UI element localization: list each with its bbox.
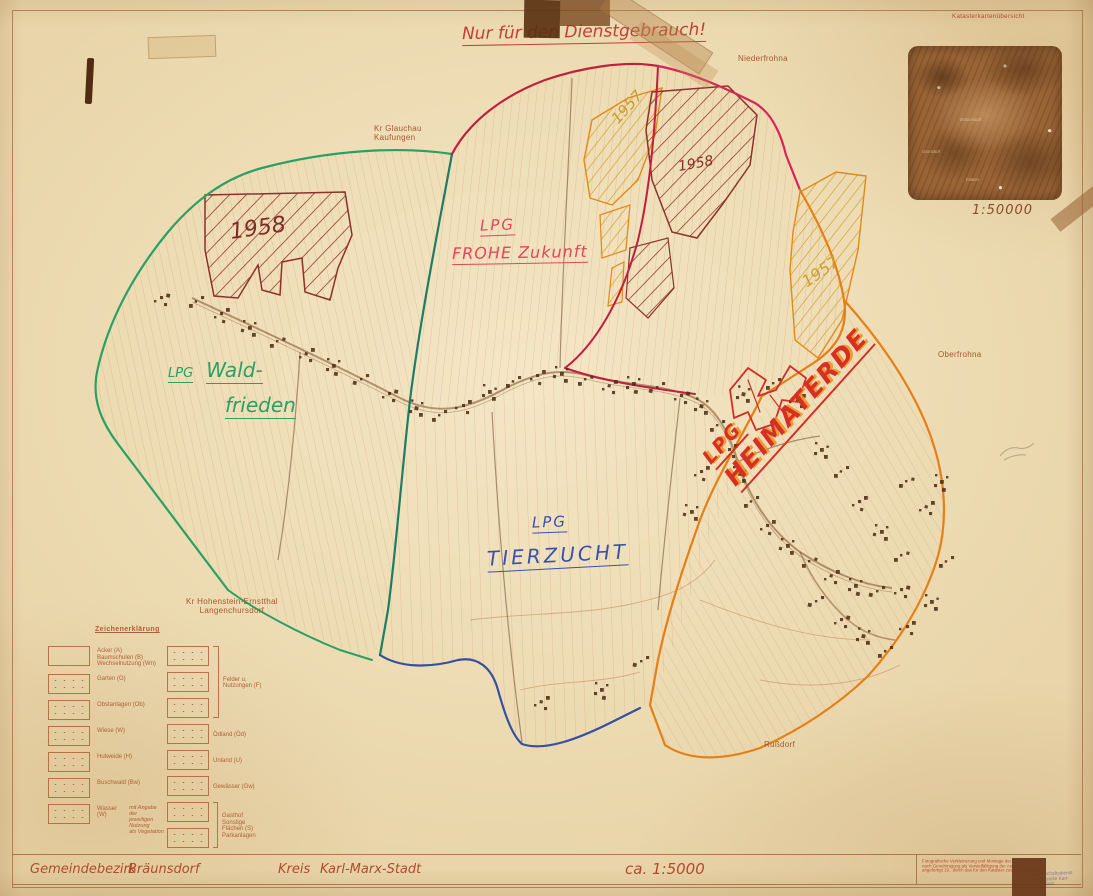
legend-right-column: Felder u. Nutzungen (F)Ödland (Öd)Unland… xyxy=(167,646,267,854)
legend-label: Gewässer (Gw) xyxy=(213,782,255,791)
label-lpg-frohe-zukunft-2: FROHE Zukunft xyxy=(452,242,588,265)
legend-symbol-box xyxy=(167,646,209,666)
legend-group: Gasthof Sonstige Flächen (S) Parkanlagen xyxy=(167,802,267,848)
legend-symbol-box xyxy=(167,724,209,744)
legend-row: Obstanlagen (Ob) xyxy=(48,700,166,720)
footer-district-label: Gemeindebezirk xyxy=(30,862,136,877)
waldfrieden-name2: frieden xyxy=(225,393,296,419)
legend-label: Wasser (W) xyxy=(97,804,122,819)
inset-label-bottom: Falken xyxy=(966,178,979,182)
place-russdorf: Rußdorf xyxy=(764,740,795,749)
legend-symbol-box xyxy=(48,726,90,746)
legend-symbol-box xyxy=(167,776,209,796)
legend-group: Ödland (Öd) xyxy=(167,724,267,744)
legend-label: Unland (U) xyxy=(213,756,242,765)
tape-residue-nw xyxy=(148,35,217,59)
stamp-dark-top xyxy=(524,0,561,38)
legend-row: Buschwald (Bw) xyxy=(48,778,166,798)
legend-symbol-box xyxy=(48,752,90,772)
legend-label: Gasthof Sonstige Flächen (S) Parkanlagen xyxy=(222,811,267,839)
inset-label-center: Bräunsdorf xyxy=(960,118,981,122)
waldfrieden-prefix: LPG xyxy=(168,366,193,383)
legend-symbol-box xyxy=(167,672,209,692)
stamp-bottom-right xyxy=(1012,858,1046,896)
place-oberfrohna: Oberfrohna xyxy=(938,350,981,359)
place-kr-glauchau: Kr Glauchau Kaufungen xyxy=(374,124,422,142)
legend-title: Zeichenerklärung xyxy=(95,626,160,633)
footer-top-rule xyxy=(12,854,1081,855)
legend-symbol-box xyxy=(48,646,90,666)
inset-map: Bräunsdorf chursdorf Falken xyxy=(908,46,1062,200)
legend-bracket xyxy=(213,646,219,718)
legend-group: Unland (U) xyxy=(167,750,267,770)
legend-left-column: Acker (A) Baumschulen (B) Wechselnutzung… xyxy=(48,646,166,841)
legend-group: Gewässer (Gw) xyxy=(167,776,267,796)
inset-title: Katasterkartenübersicht xyxy=(952,13,1025,20)
footer-kreis-label: Kreis xyxy=(278,862,310,877)
footer-bottom-rule xyxy=(12,884,1081,885)
footer-district-value: Bräunsdorf xyxy=(128,862,200,877)
legend-symbol-box xyxy=(48,778,90,798)
hatch-yellow-small-1 xyxy=(600,205,630,258)
label-lpg-waldfrieden: LPG Wald- xyxy=(168,358,263,384)
footer-kreis-value: Karl-Marx-Stadt xyxy=(320,862,421,877)
legend: Zeichenerklärung Acker (A) Baumschulen (… xyxy=(40,626,250,854)
inset-label-left: chursdorf xyxy=(922,150,940,154)
footer-divider xyxy=(916,854,917,884)
legend-label: Ödland (Öd) xyxy=(213,730,246,739)
legend-label: Garten (G) xyxy=(97,674,126,683)
label-lpg-frohe-zukunft-1: LPG xyxy=(480,214,516,236)
legend-note: mit Angabe der jeweiligen Nutzung als Ve… xyxy=(129,804,166,835)
legend-symbol-box xyxy=(48,804,90,824)
legend-symbol-box xyxy=(167,802,209,822)
label-lpg-tierzucht-1: LPG xyxy=(532,511,568,533)
legend-symbol-box xyxy=(167,828,209,848)
legend-row: Wiese (W) xyxy=(48,726,166,746)
legend-symbol-box xyxy=(48,700,90,720)
waldfrieden-name1: Wald- xyxy=(206,358,262,384)
legend-row: Hutweide (H) xyxy=(48,752,166,772)
legend-label: Acker (A) Baumschulen (B) Wechselnutzung… xyxy=(97,646,156,668)
legend-bracket xyxy=(213,802,218,848)
legend-row: Acker (A) Baumschulen (B) Wechselnutzung… xyxy=(48,646,166,668)
inset-scale: 1:50000 xyxy=(972,203,1033,218)
legend-label: Buschwald (Bw) xyxy=(97,778,140,787)
place-niederfrohna: Niederfrohna xyxy=(738,54,788,63)
legend-label: Hutweide (H) xyxy=(97,752,132,761)
legend-symbol-box xyxy=(48,674,90,694)
legend-symbol-box xyxy=(167,698,209,718)
place-kr-hohenstein: Kr Hohenstein-Ernstthal Langenchursdorf xyxy=(186,597,278,615)
pencil-note xyxy=(1000,443,1034,460)
label-lpg-waldfrieden-2: frieden xyxy=(225,393,296,419)
legend-label: Wiese (W) xyxy=(97,726,125,735)
legend-symbol-box xyxy=(167,750,209,770)
cadastral-map-sheet: Nur für den Dienstgebrauch! Katasterkart… xyxy=(0,0,1093,896)
legend-label: Obstanlagen (Ob) xyxy=(97,700,145,709)
legend-row: Wasser (W)mit Angabe der jeweiligen Nutz… xyxy=(48,804,166,835)
footer-scale: ca. 1:5000 xyxy=(625,860,705,878)
hatch-1958-nw xyxy=(205,192,352,300)
legend-group: Felder u. Nutzungen (F) xyxy=(167,646,267,718)
legend-row: Garten (G) xyxy=(48,674,166,694)
legend-label: Felder u. Nutzungen (F) xyxy=(223,675,261,690)
